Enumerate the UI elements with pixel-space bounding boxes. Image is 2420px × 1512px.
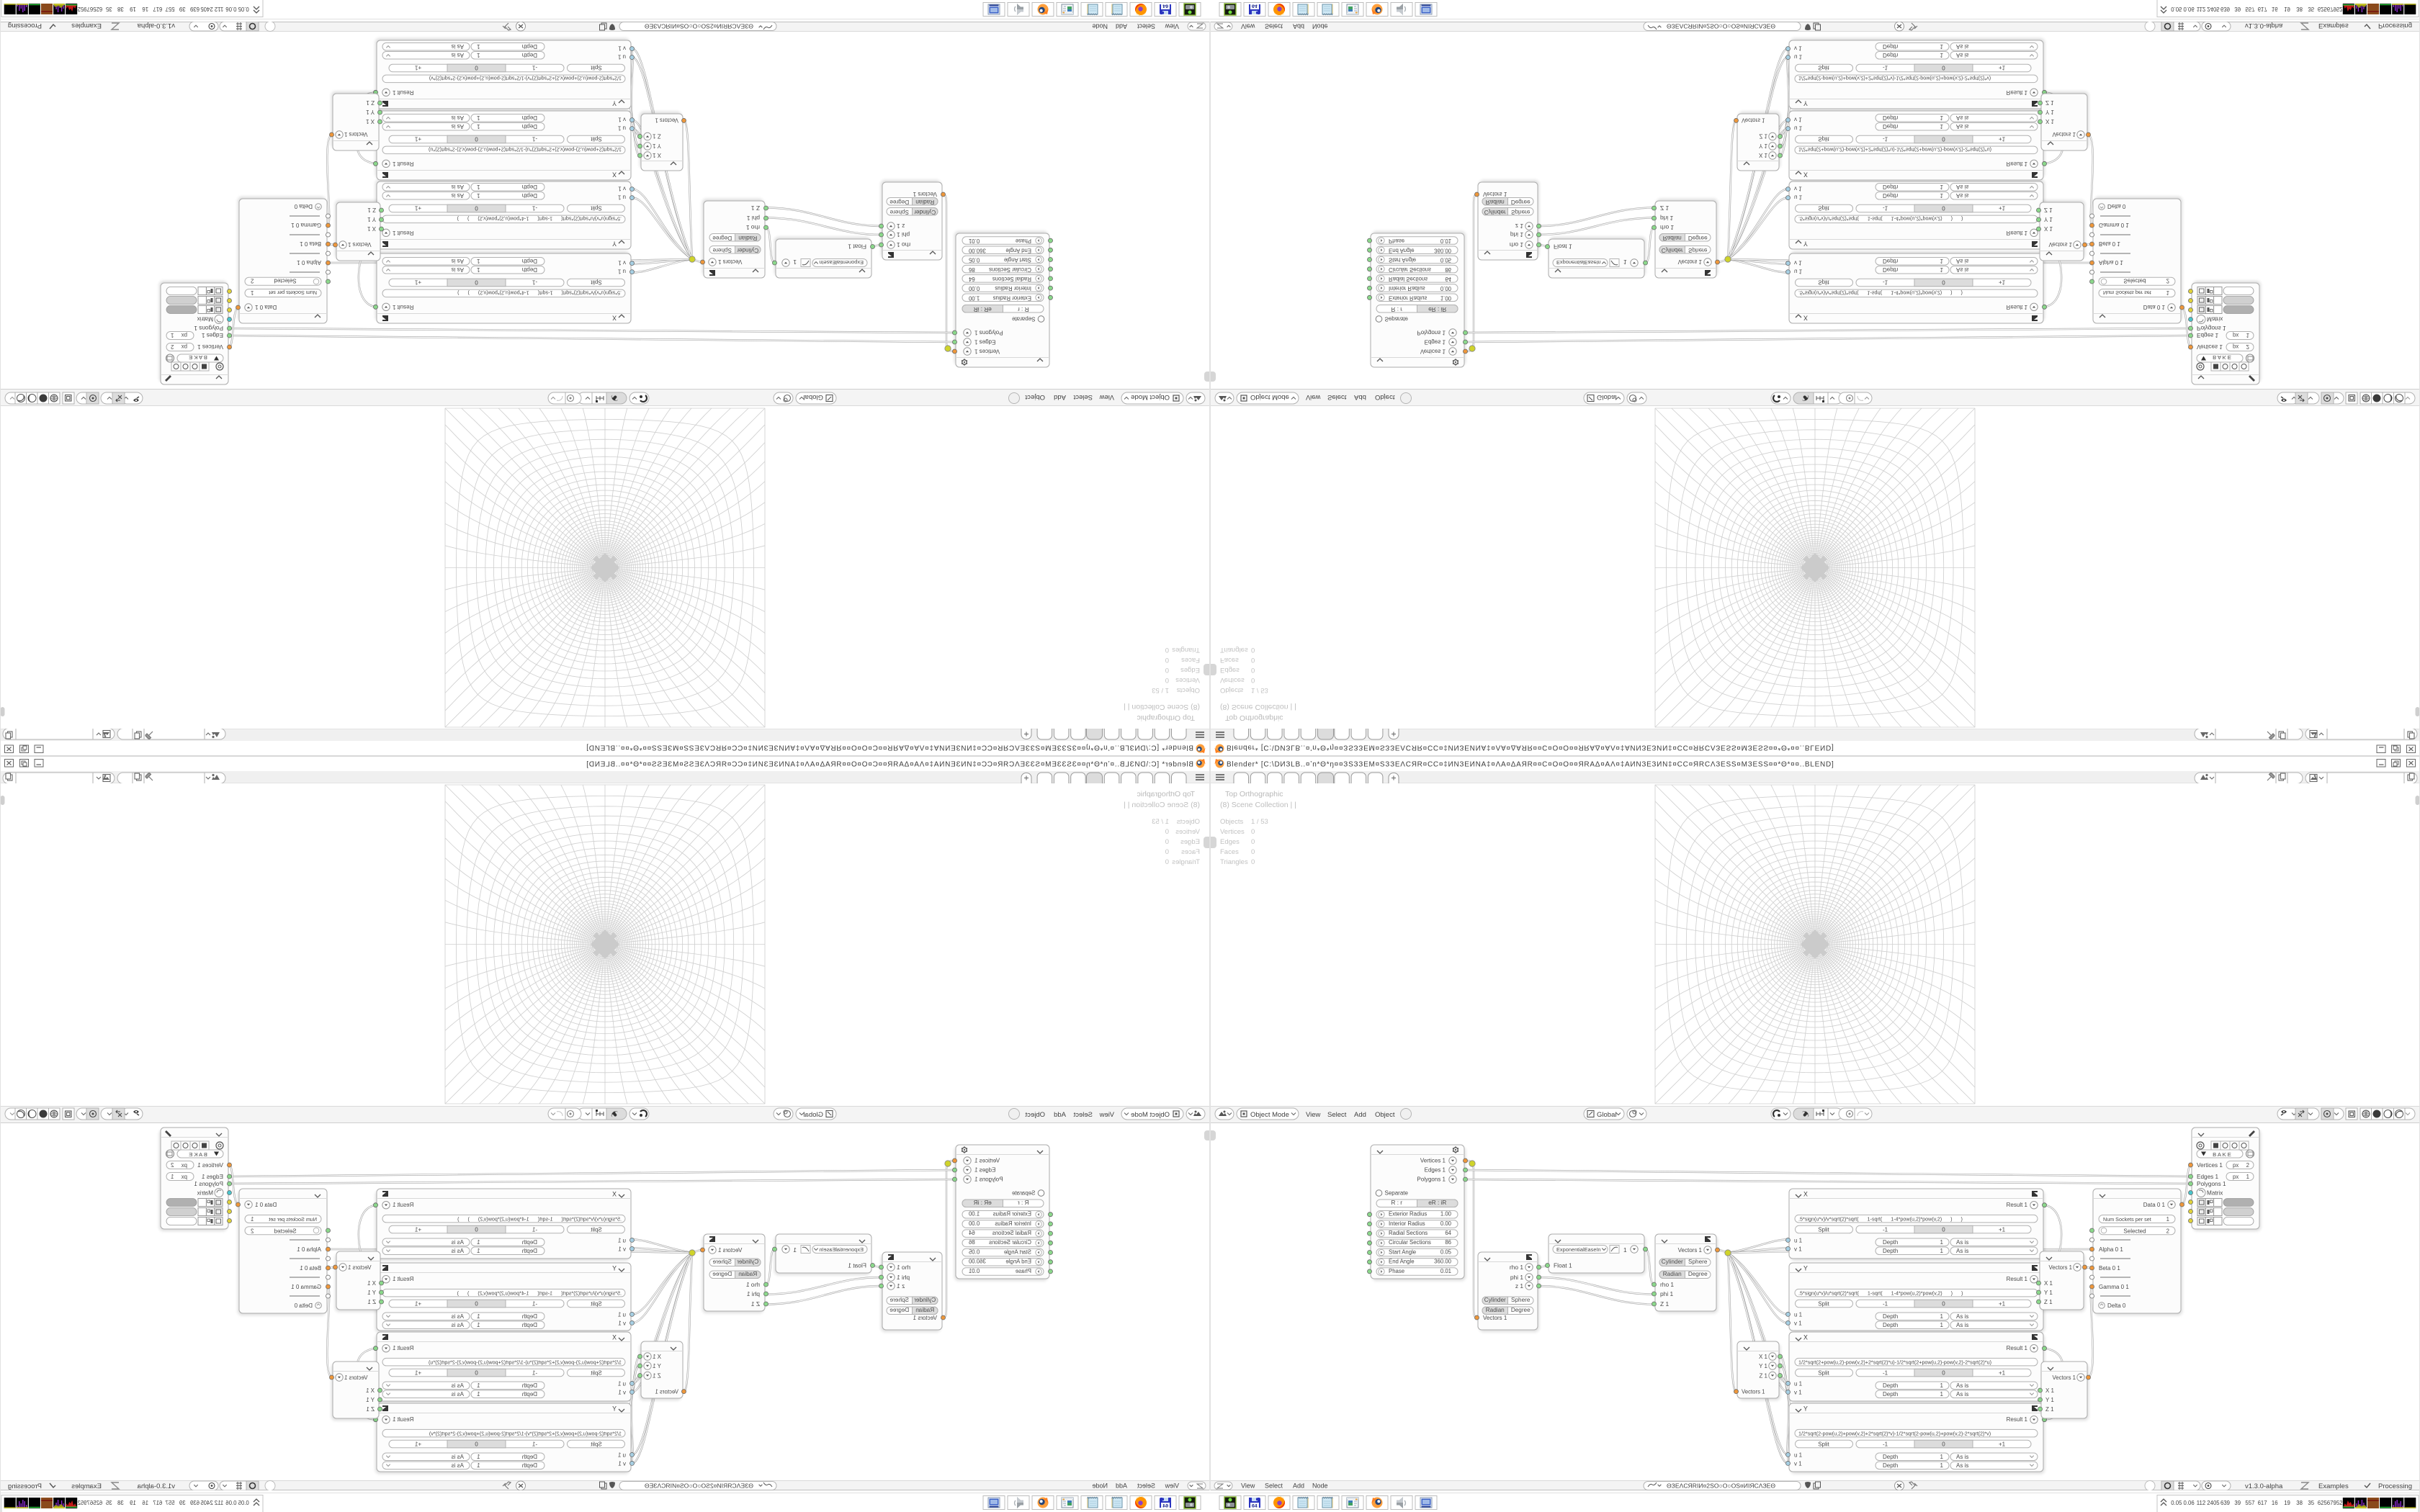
svg-text:360.00: 360.00 xyxy=(1434,1259,1452,1265)
svg-text:Polygons 1: Polygons 1 xyxy=(1417,1176,1446,1183)
svg-text:Y: Y xyxy=(1803,1265,1808,1272)
svg-text:Result 1: Result 1 xyxy=(2007,1416,2028,1423)
svg-text:Depth: Depth xyxy=(1883,1248,1898,1254)
svg-text:v1.3.0-alpha: v1.3.0-alpha xyxy=(2245,1482,2283,1490)
svg-text:+1: +1 xyxy=(1999,1370,2006,1377)
svg-text:phi 1: phi 1 xyxy=(1660,1290,1674,1297)
svg-text:As is: As is xyxy=(1956,1313,1968,1320)
svg-text:1: 1 xyxy=(1940,1248,1944,1254)
svg-text:617: 617 xyxy=(2258,1500,2267,1506)
svg-text:u 1: u 1 xyxy=(1794,1452,1803,1459)
svg-text:Result 1: Result 1 xyxy=(2007,1202,2028,1208)
svg-text:X 1: X 1 xyxy=(1759,1354,1768,1360)
svg-text:Vertices 1: Vertices 1 xyxy=(2197,1162,2223,1169)
svg-text:X 1: X 1 xyxy=(2045,1387,2055,1394)
svg-text:0: 0 xyxy=(1251,828,1255,836)
svg-text:Select: Select xyxy=(1265,1482,1283,1490)
svg-text:Float 1: Float 1 xyxy=(1554,1262,1572,1269)
svg-text:1: 1 xyxy=(2246,1174,2249,1180)
svg-text:Z 1: Z 1 xyxy=(1660,1300,1669,1308)
svg-text:Num Sockets per set: Num Sockets per set xyxy=(2103,1216,2151,1223)
svg-text:1.00: 1.00 xyxy=(1440,1211,1452,1218)
svg-text:.5*sign(u*v)/v*sqrt(2)*sqrt(: .5*sign(u*v)/v*sqrt(2)*sqrt( 1-sqrt( 1-4… xyxy=(1798,1216,1963,1223)
svg-text:Processing: Processing xyxy=(2378,1482,2412,1490)
svg-text:Separate: Separate xyxy=(1385,1190,1409,1197)
svg-text:Examples: Examples xyxy=(2318,1482,2349,1490)
svg-text:38: 38 xyxy=(2296,1500,2303,1506)
svg-text:Faces: Faces xyxy=(1220,848,1239,856)
svg-text:Object: Object xyxy=(1375,1111,1395,1119)
svg-text:R : r: R : r xyxy=(1391,1200,1403,1206)
svg-text:u 1: u 1 xyxy=(1794,1312,1803,1318)
svg-text:Vectors 1: Vectors 1 xyxy=(2052,1374,2076,1381)
svg-text:+1: +1 xyxy=(1999,1301,2006,1308)
svg-text:Sphere: Sphere xyxy=(1511,1297,1531,1303)
svg-text:Vertices: Vertices xyxy=(1220,828,1245,836)
svg-text:Result 1: Result 1 xyxy=(2007,1276,2028,1282)
svg-text:0: 0 xyxy=(1251,838,1255,846)
svg-text:Z 1: Z 1 xyxy=(2045,1406,2054,1413)
svg-text:Degree: Degree xyxy=(1688,1271,1708,1277)
svg-text:1: 1 xyxy=(1940,1391,1944,1398)
svg-text:As is: As is xyxy=(1956,1248,1968,1254)
svg-text:As is: As is xyxy=(1956,1322,1968,1328)
svg-text:Y 1: Y 1 xyxy=(2045,1397,2054,1403)
svg-text:62567952: 62567952 xyxy=(2318,1500,2343,1506)
svg-text:rho 1: rho 1 xyxy=(1660,1281,1674,1288)
svg-text:u 1: u 1 xyxy=(1794,1381,1803,1387)
svg-text:Split: Split xyxy=(1818,1441,1829,1448)
svg-text:Data 0 1: Data 0 1 xyxy=(2143,1202,2166,1208)
svg-text:0: 0 xyxy=(1251,858,1255,866)
svg-text:112: 112 xyxy=(2197,1500,2205,1506)
svg-text:u 1: u 1 xyxy=(1794,1238,1803,1244)
svg-text:Depth: Depth xyxy=(1883,1382,1898,1389)
svg-text:Cylinder: Cylinder xyxy=(1662,1259,1683,1265)
svg-text:As is: As is xyxy=(1956,1462,1968,1469)
svg-text:Start Angle: Start Angle xyxy=(1389,1248,1416,1255)
svg-text:Add: Add xyxy=(1354,1111,1366,1119)
svg-text:View: View xyxy=(1241,1482,1255,1490)
svg-text:-1: -1 xyxy=(1883,1227,1888,1233)
svg-text:Radian: Radian xyxy=(1663,1271,1682,1277)
svg-text:0: 0 xyxy=(1942,1301,1945,1308)
svg-text:Vectors 1: Vectors 1 xyxy=(1678,1247,1703,1254)
svg-text:Edges: Edges xyxy=(1220,838,1240,846)
svg-text:1: 1 xyxy=(1940,1382,1944,1389)
svg-text:Y: Y xyxy=(1803,1405,1808,1413)
svg-text:-1: -1 xyxy=(1883,1301,1888,1308)
svg-text:v 1: v 1 xyxy=(1794,1320,1802,1327)
svg-text:1/2*sqrt(2-pow(u,2)+pow(v,2)+2: 1/2*sqrt(2-pow(u,2)+pow(v,2)+2*sqrt(2)*v… xyxy=(1798,1431,1991,1437)
svg-text:Depth: Depth xyxy=(1883,1391,1898,1398)
svg-text:Select: Select xyxy=(1327,1111,1347,1119)
svg-text:Circular Sections: Circular Sections xyxy=(1389,1239,1431,1246)
svg-text:As is: As is xyxy=(1956,1454,1968,1460)
svg-text:Beta 0 1: Beta 0 1 xyxy=(2099,1265,2120,1272)
svg-text:Phase: Phase xyxy=(1389,1268,1404,1274)
svg-text:px: px xyxy=(2233,1174,2238,1180)
svg-text:0.06: 0.06 xyxy=(2184,1500,2195,1506)
svg-text:0.01: 0.01 xyxy=(1440,1268,1451,1274)
svg-text:Gamma 0 1: Gamma 0 1 xyxy=(2099,1284,2129,1290)
svg-text:0: 0 xyxy=(1942,1370,1945,1377)
svg-text:+1: +1 xyxy=(1999,1441,2006,1448)
svg-text:(8) Scene Collection | |: (8) Scene Collection | | xyxy=(1220,801,1296,809)
svg-text:phi 1: phi 1 xyxy=(1510,1274,1524,1281)
svg-text:Matrix: Matrix xyxy=(2207,1190,2223,1197)
svg-text:86: 86 xyxy=(1445,1239,1451,1246)
svg-text:0.05: 0.05 xyxy=(2171,1500,2182,1506)
svg-text:64: 64 xyxy=(1252,1504,1258,1509)
svg-text:1 / 53: 1 / 53 xyxy=(1251,818,1268,826)
svg-text:Depth: Depth xyxy=(1883,1239,1898,1246)
svg-text:As is: As is xyxy=(1956,1239,1968,1246)
svg-text:Polygons 1: Polygons 1 xyxy=(2197,1181,2226,1187)
svg-text:Vectors 1: Vectors 1 xyxy=(2048,1264,2072,1271)
svg-text:1: 1 xyxy=(1940,1454,1944,1460)
svg-text:639: 639 xyxy=(2220,1500,2230,1506)
svg-text:64: 64 xyxy=(1445,1230,1451,1236)
svg-text:1: 1 xyxy=(1940,1462,1944,1469)
svg-text:X: X xyxy=(1803,1191,1808,1198)
svg-text:End Angle: End Angle xyxy=(1389,1259,1415,1265)
svg-text:v 1: v 1 xyxy=(1794,1246,1802,1253)
svg-text:Edges 1: Edges 1 xyxy=(2197,1174,2218,1180)
svg-text:Global: Global xyxy=(1597,1111,1616,1119)
svg-text:Depth: Depth xyxy=(1883,1454,1898,1460)
svg-text:1: 1 xyxy=(2166,1216,2169,1223)
svg-text:Edges 1: Edges 1 xyxy=(1425,1167,1446,1174)
svg-text:Result 1: Result 1 xyxy=(2007,1345,2028,1351)
svg-text:Cylinder: Cylinder xyxy=(1484,1297,1506,1303)
svg-text:35: 35 xyxy=(2308,1500,2314,1506)
svg-text:Y 1: Y 1 xyxy=(1759,1363,1767,1369)
svg-text:Z 1: Z 1 xyxy=(2044,1299,2053,1305)
svg-text:Triangles: Triangles xyxy=(1220,858,1248,866)
svg-text:Depth: Depth xyxy=(1883,1462,1898,1469)
svg-text:2405: 2405 xyxy=(2207,1500,2220,1506)
svg-text:Z 1: Z 1 xyxy=(1759,1373,1767,1380)
svg-text:Selected: Selected xyxy=(2123,1228,2146,1235)
svg-text:Sphere: Sphere xyxy=(1688,1259,1708,1265)
svg-text:Delta 0: Delta 0 xyxy=(2107,1302,2126,1309)
svg-text:Exterior Radius: Exterior Radius xyxy=(1389,1211,1427,1218)
svg-text:Depth: Depth xyxy=(1883,1313,1898,1320)
svg-text:Radial Sections: Radial Sections xyxy=(1389,1230,1428,1236)
svg-text:View: View xyxy=(1306,1111,1321,1119)
svg-text:ExponentialEaseIn: ExponentialEaseIn xyxy=(1556,1246,1601,1253)
svg-text:39: 39 xyxy=(2234,1500,2241,1506)
svg-text:X 1: X 1 xyxy=(2044,1280,2053,1287)
svg-text:Blender* [C:\DИЗLB..¤ʼn*Θ*ŋ¤¤З: Blender* [C:\DИЗLB..¤ʼn*Θ*ŋ¤¤ЗSЗЗEM¤SЗЗE… xyxy=(1227,761,1834,769)
svg-text:Alpha 0 1: Alpha 0 1 xyxy=(2099,1246,2123,1253)
svg-text:X: X xyxy=(1803,1334,1808,1341)
svg-text:rho 1: rho 1 xyxy=(1510,1264,1523,1271)
svg-text:-1: -1 xyxy=(1883,1441,1888,1448)
svg-text:Node: Node xyxy=(1312,1482,1328,1490)
svg-text:1/2*sqrt(2+pow(u,2)-pow(v,2)+2: 1/2*sqrt(2+pow(u,2)-pow(v,2)+2*sqrt(2)*u… xyxy=(1798,1359,1991,1366)
svg-text:v 1: v 1 xyxy=(1794,1390,1802,1396)
svg-text:557: 557 xyxy=(2245,1500,2254,1506)
svg-text:2: 2 xyxy=(2166,1228,2169,1235)
svg-text:1: 1 xyxy=(1940,1239,1944,1246)
svg-text:Y 1: Y 1 xyxy=(2044,1290,2053,1296)
svg-text:As is: As is xyxy=(1956,1391,1968,1398)
svg-text:v 1: v 1 xyxy=(1794,1461,1802,1467)
svg-text:-1: -1 xyxy=(1883,1370,1888,1377)
svg-text:19: 19 xyxy=(2284,1500,2290,1506)
svg-text:B A K E: B A K E xyxy=(2213,1151,2231,1158)
svg-text:.5*sign(u*v)/u*sqrt(2)*sqrt(: .5*sign(u*v)/u*sqrt(2)*sqrt( 1-sqrt( 1-4… xyxy=(1798,1290,1963,1297)
svg-text:0: 0 xyxy=(1942,1227,1945,1233)
svg-text:1: 1 xyxy=(1940,1313,1944,1320)
svg-text:0.05: 0.05 xyxy=(1440,1248,1452,1255)
svg-text:+1: +1 xyxy=(1999,1227,2006,1233)
svg-text:Top Orthographic: Top Orthographic xyxy=(1225,790,1283,798)
svg-text:Object Mode: Object Mode xyxy=(1250,1111,1289,1119)
svg-text:Vectors 1: Vectors 1 xyxy=(1742,1389,1765,1395)
svg-text:As is: As is xyxy=(1956,1382,1968,1389)
svg-text:0: 0 xyxy=(1942,1441,1945,1448)
svg-text:Split: Split xyxy=(1818,1370,1829,1377)
svg-text:Interior Radius: Interior Radius xyxy=(1389,1220,1425,1227)
svg-text:Vertices 1: Vertices 1 xyxy=(1420,1158,1446,1164)
svg-text:16: 16 xyxy=(2272,1500,2278,1506)
svg-text:1: 1 xyxy=(1623,1246,1627,1254)
svg-text:Degree: Degree xyxy=(1511,1307,1531,1313)
svg-text:Vectors 1: Vectors 1 xyxy=(1483,1315,1507,1321)
svg-text:Objects: Objects xyxy=(1220,818,1243,826)
svg-text:0.00: 0.00 xyxy=(1440,1220,1452,1227)
svg-text:2: 2 xyxy=(2246,1162,2249,1169)
svg-text:Radian: Radian xyxy=(1486,1307,1505,1313)
svg-text:px: px xyxy=(2233,1162,2238,1169)
svg-text:eR : iR: eR : iR xyxy=(1428,1200,1446,1206)
svg-text:Split: Split xyxy=(1818,1227,1829,1233)
svg-text:z 1: z 1 xyxy=(1515,1282,1524,1290)
svg-text:ΘЗΕΛСЯRIИ¤2SО○О○ОS¤ИIЯСΛЗΕΘ: ΘЗΕΛСЯRIИ¤2SО○О○ОS¤ИIЯСΛЗΕΘ xyxy=(1667,1482,1775,1490)
svg-text:0: 0 xyxy=(1251,848,1255,856)
svg-text:Split: Split xyxy=(1818,1301,1829,1308)
svg-text:Add: Add xyxy=(1293,1482,1304,1490)
svg-text:Depth: Depth xyxy=(1883,1322,1898,1328)
svg-text:1: 1 xyxy=(1940,1322,1944,1328)
